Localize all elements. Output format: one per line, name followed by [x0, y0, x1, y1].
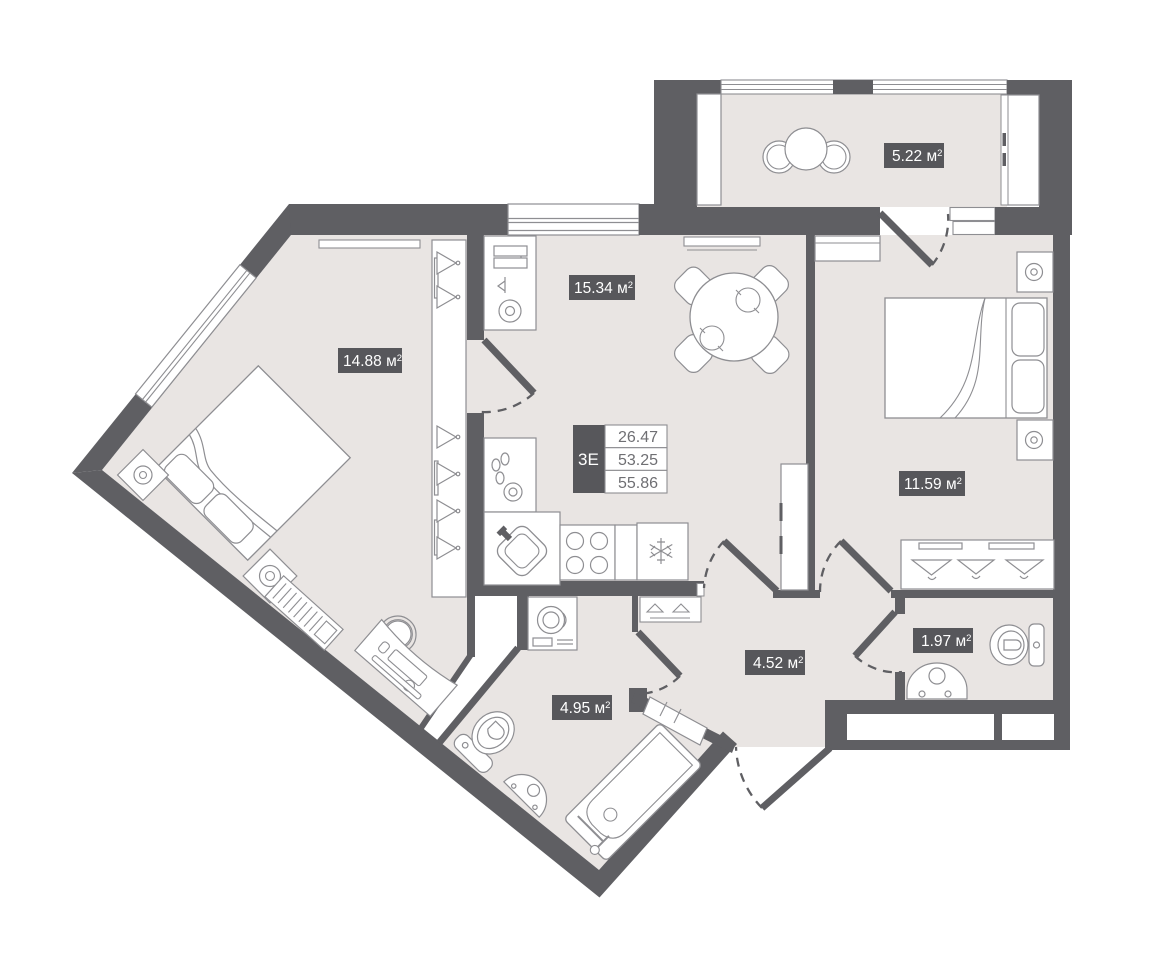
- svg-text:11.59 м2: 11.59 м2: [904, 476, 962, 493]
- svg-text:3Е: 3Е: [578, 450, 599, 469]
- svg-text:4.52 м2: 4.52 м2: [753, 655, 803, 672]
- svg-text:14.88 м2: 14.88 м2: [343, 353, 402, 370]
- svg-text:5.22 м2: 5.22 м2: [892, 148, 942, 165]
- svg-text:4.95 м2: 4.95 м2: [560, 700, 610, 717]
- svg-text:55.86: 55.86: [618, 475, 658, 492]
- svg-text:1.97 м2: 1.97 м2: [921, 633, 971, 650]
- svg-text:26.47: 26.47: [618, 429, 658, 446]
- svg-text:53.25: 53.25: [618, 452, 658, 469]
- svg-text:15.34 м2: 15.34 м2: [574, 280, 633, 297]
